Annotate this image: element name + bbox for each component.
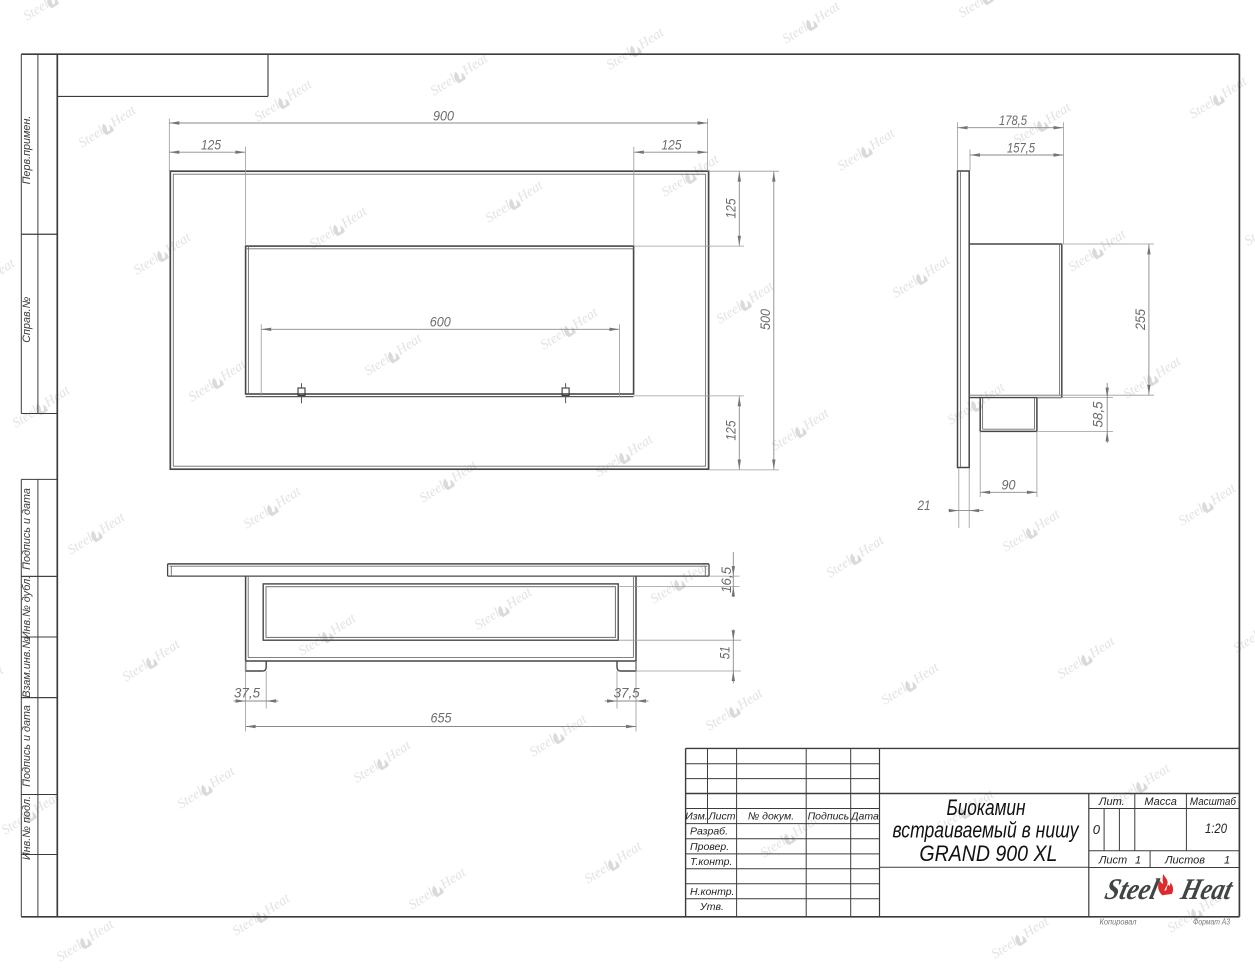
svg-text:1:20: 1:20 — [1205, 821, 1227, 836]
svg-text:Т.контр.: Т.контр. — [690, 856, 732, 868]
svg-text:Инв.№ дубл.: Инв.№ дубл. — [21, 576, 33, 639]
svg-text:GRAND 900 XL: GRAND 900 XL — [919, 841, 1057, 866]
svg-text:Взам.инв.№: Взам.инв.№ — [21, 637, 33, 698]
svg-text:37,5: 37,5 — [614, 685, 640, 701]
svg-text:№ докум.: № докум. — [748, 811, 794, 823]
svg-text:655: 655 — [431, 709, 452, 725]
svg-text:157,5: 157,5 — [1007, 139, 1035, 155]
svg-text:Перв.примен.: Перв.примен. — [21, 116, 33, 185]
svg-text:Масштаб: Масштаб — [1190, 796, 1237, 808]
svg-text:Дата: Дата — [850, 811, 879, 823]
svg-text:1: 1 — [1135, 855, 1141, 867]
svg-text:Steel: Steel — [1102, 872, 1163, 905]
svg-text:Изм.: Изм. — [685, 811, 707, 823]
svg-text:Разраб.: Разраб. — [690, 826, 728, 838]
svg-text:Подпись: Подпись — [808, 811, 850, 823]
svg-text:90: 90 — [1002, 477, 1016, 493]
svg-text:1: 1 — [1224, 855, 1230, 867]
svg-text:500: 500 — [757, 309, 773, 330]
svg-text:125: 125 — [201, 137, 221, 153]
svg-text:255: 255 — [1132, 309, 1148, 331]
svg-text:Провер.: Провер. — [690, 841, 729, 853]
svg-text:125: 125 — [722, 420, 738, 440]
svg-text:Копировал: Копировал — [1100, 917, 1137, 926]
svg-text:0: 0 — [1093, 822, 1101, 837]
svg-text:Инв.№ подл.: Инв.№ подл. — [21, 796, 33, 860]
svg-text:Формат А3: Формат А3 — [1193, 917, 1230, 926]
svg-text:37,5: 37,5 — [234, 685, 260, 701]
svg-text:встраиваемый в нишу: встраиваемый в нишу — [893, 818, 1081, 843]
svg-text:Лит.: Лит. — [1098, 796, 1125, 808]
svg-text:Масса: Масса — [1144, 796, 1177, 808]
svg-text:Лист: Лист — [707, 811, 735, 823]
svg-text:Подпись и дата: Подпись и дата — [21, 488, 33, 570]
svg-text:16,5: 16,5 — [718, 567, 734, 593]
svg-text:58,5: 58,5 — [1090, 401, 1106, 427]
svg-text:178,5: 178,5 — [999, 112, 1027, 128]
svg-text:Heat: Heat — [1177, 872, 1237, 905]
svg-text:Биокамин: Биокамин — [947, 795, 1026, 820]
svg-text:900: 900 — [433, 107, 454, 123]
svg-text:Листов: Листов — [1164, 855, 1205, 867]
svg-text:51: 51 — [716, 646, 732, 659]
svg-text:125: 125 — [662, 137, 682, 153]
svg-text:Утв.: Утв. — [699, 901, 724, 913]
svg-text:125: 125 — [722, 198, 738, 218]
svg-text:Справ.№: Справ.№ — [21, 296, 33, 342]
svg-text:Лист: Лист — [1098, 855, 1127, 867]
svg-text:21: 21 — [917, 497, 931, 513]
svg-text:600: 600 — [430, 314, 451, 330]
svg-text:Подпись и дата: Подпись и дата — [21, 705, 33, 787]
svg-text:Н.контр.: Н.контр. — [690, 886, 734, 898]
